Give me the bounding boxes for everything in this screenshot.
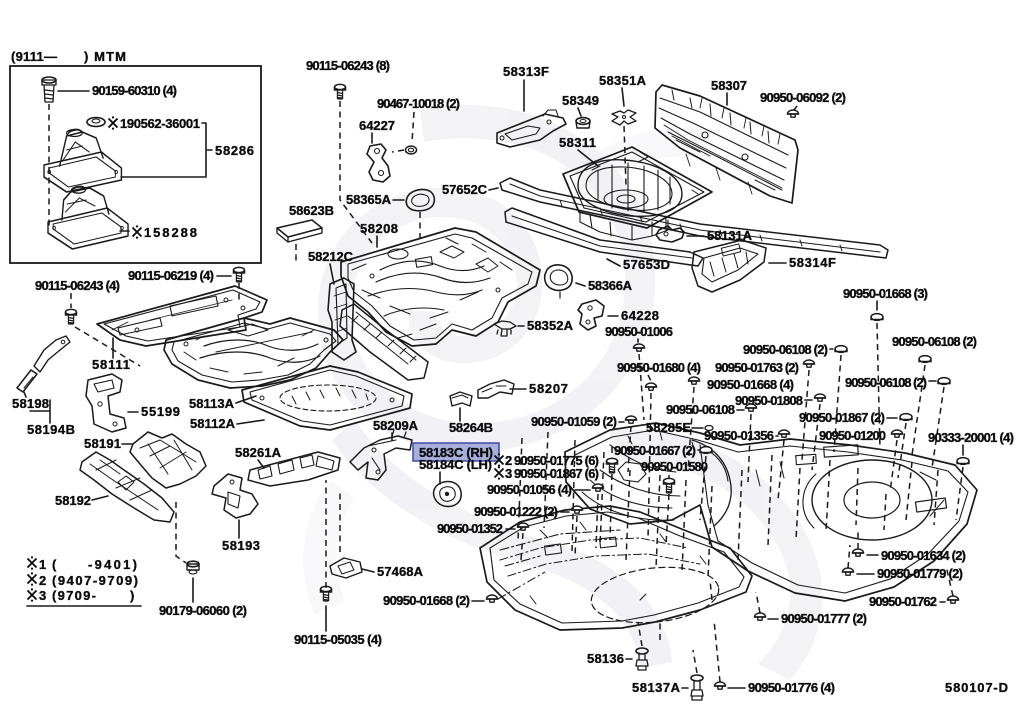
svg-text:90950-06108 (2): 90950-06108 (2) [743,342,828,357]
svg-text:90333-20001 (4): 90333-20001 (4) [928,430,1014,445]
svg-text:58264B: 58264B [449,420,493,435]
svg-text:90950-01634 (2): 90950-01634 (2) [881,548,966,563]
svg-text:(9709-: (9709- [52,588,96,603]
svg-text:58366A: 58366A [588,278,633,293]
svg-text:90950-06108 (2): 90950-06108 (2) [892,334,977,349]
svg-text:) MTM: ) MTM [84,49,126,64]
svg-text:58209A: 58209A [373,418,419,433]
svg-text:90115-06243 (4): 90115-06243 (4) [35,278,120,293]
svg-text:3: 3 [39,588,46,603]
svg-text:2: 2 [39,573,46,588]
svg-text:58314F: 58314F [789,255,836,270]
svg-text:58191: 58191 [84,436,121,451]
svg-text:90950-01006: 90950-01006 [605,324,673,339]
svg-text:58198: 58198 [12,396,49,411]
svg-text:90950-01056 (4): 90950-01056 (4) [487,482,572,497]
svg-text:58184C (LH): 58184C (LH) [419,457,492,472]
svg-text:90950-01200: 90950-01200 [819,428,886,443]
svg-text:57468A: 57468A [377,564,424,579]
svg-text:58351A: 58351A [599,73,647,88]
svg-text:58111: 58111 [92,357,130,372]
svg-text:90159-60310 (4): 90159-60310 (4) [92,83,177,98]
svg-text:90950-01668 (2): 90950-01668 (2) [383,593,470,608]
svg-text:58193: 58193 [222,538,260,553]
svg-text:90950-01777 (2): 90950-01777 (2) [781,611,867,626]
svg-text:58311: 58311 [559,135,596,150]
svg-text:58194B: 58194B [27,422,75,437]
svg-text:58352A: 58352A [527,318,574,333]
svg-text:90467-10018 (2): 90467-10018 (2) [377,96,460,111]
svg-text:90950-01580: 90950-01580 [641,459,708,474]
svg-text:1: 1 [39,557,46,572]
svg-text:90950-01762: 90950-01762 [869,594,937,609]
svg-text:(9407-9709): (9407-9709) [52,573,138,588]
svg-text:58349: 58349 [562,93,599,108]
svg-text:58207: 58207 [529,381,568,396]
svg-text:90950-01779 (2): 90950-01779 (2) [877,566,963,581]
svg-text:58112A: 58112A [190,416,236,431]
svg-text:90950-01867 (2): 90950-01867 (2) [799,410,885,425]
svg-text:57652C: 57652C [442,182,488,197]
svg-text:90950-01059 (2): 90950-01059 (2) [531,414,617,429]
svg-text:58137A: 58137A [632,680,681,695]
svg-text:58365A: 58365A [346,192,392,207]
svg-text:580107-D: 580107-D [945,680,1008,695]
svg-text:90950-01667 (2): 90950-01667 (2) [614,443,696,458]
svg-text:58192: 58192 [55,493,91,508]
svg-text:90950-01680 (4): 90950-01680 (4) [617,360,701,375]
svg-text:64227: 64227 [359,118,395,133]
svg-text:58136: 58136 [587,651,624,666]
svg-text:90950-01356: 90950-01356 [704,428,774,443]
svg-text:): ) [130,588,134,603]
svg-text:(: ( [52,557,57,572]
svg-text:64228: 64228 [621,308,659,323]
svg-text:90179-06060 (2): 90179-06060 (2) [159,603,247,618]
svg-text:58208: 58208 [360,221,398,236]
svg-text:55199: 55199 [141,404,180,419]
svg-text:58113A: 58113A [189,396,235,411]
svg-text:90950-01668 (3): 90950-01668 (3) [843,286,928,301]
svg-text:190562-36001: 190562-36001 [120,116,200,131]
svg-text:90950-01808: 90950-01808 [735,393,803,408]
svg-text:58212C: 58212C [308,249,354,264]
svg-text:90950-06108: 90950-06108 [666,402,735,417]
svg-text:90115-06219 (4): 90115-06219 (4) [128,268,214,283]
svg-text:90115-05035 (4): 90115-05035 (4) [294,632,382,647]
svg-text:90950-01668 (4): 90950-01668 (4) [707,377,794,392]
svg-text:90950-06092 (2): 90950-06092 (2) [760,90,846,105]
svg-text:90950-01867 (6): 90950-01867 (6) [514,466,599,481]
svg-text:3: 3 [505,466,512,481]
svg-text:90950-06108 (2): 90950-06108 (2) [845,375,927,390]
svg-text:(9111—: (9111— [11,49,57,64]
svg-text:90950-01776 (4): 90950-01776 (4) [748,680,835,695]
svg-text:58623B: 58623B [289,203,334,218]
svg-text:90950-01352: 90950-01352 [437,521,503,536]
svg-text:58261A: 58261A [235,445,282,460]
svg-text:58285E: 58285E [646,420,691,435]
svg-text:58286: 58286 [215,143,254,158]
svg-text:58313F: 58313F [503,64,549,79]
svg-text:90950-01763 (2): 90950-01763 (2) [715,360,799,375]
svg-text:90115-06243 (8): 90115-06243 (8) [306,58,390,73]
svg-text:58307: 58307 [711,78,747,93]
